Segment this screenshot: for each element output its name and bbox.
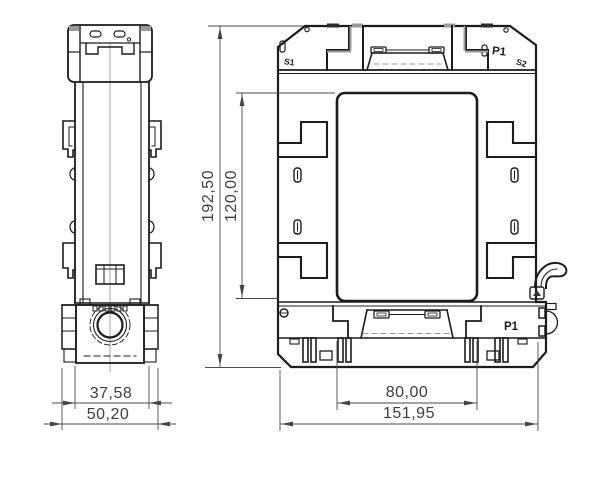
label-s1: S1 [284,56,296,67]
technical-drawing: 192,50 120,00 37,58 50,20 80,00 151,95 S… [0,0,600,483]
body-outline [278,26,546,367]
top-pad [352,24,363,28]
front-view [278,24,566,368]
top-tick [481,24,493,28]
dim-overall-width: 151,95 [383,405,435,422]
label-p1-top: P1 [491,45,507,58]
cap-corner-pad [141,26,151,31]
drawing-canvas: 192,50 120,00 37,58 50,20 80,00 151,95 S… [0,0,600,483]
dim-window-height: 120,00 [223,170,240,222]
dim-overall-depth: 50,20 [87,406,130,423]
top-pad [444,24,455,28]
dim-window-width: 80,00 [386,384,429,401]
cap-corner-pad [69,26,79,31]
dim-overall-height: 192,50 [200,170,217,222]
label-p1-bottom: P1 [504,321,519,333]
dim-body-width: 37,58 [90,385,133,402]
top-tick [327,24,339,28]
